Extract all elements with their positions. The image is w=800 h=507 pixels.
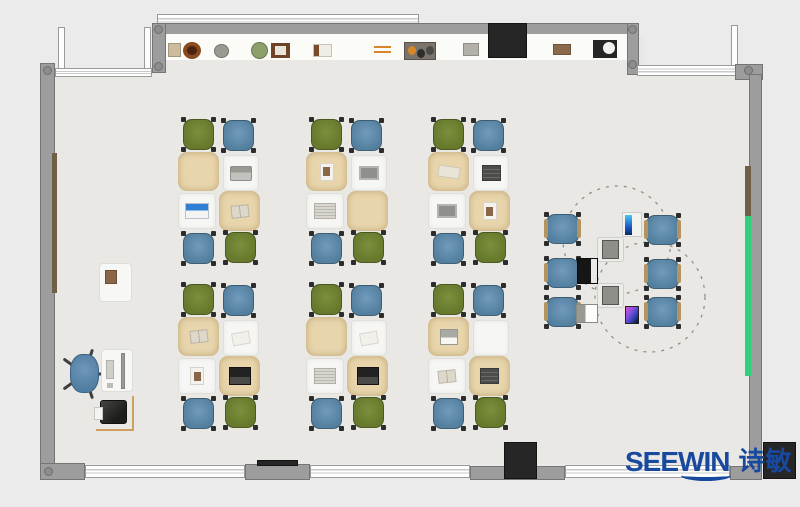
desk-item-laptop-dark bbox=[229, 367, 251, 385]
armrest bbox=[544, 219, 548, 238]
chair-foot bbox=[576, 324, 581, 329]
chair-seat bbox=[473, 120, 504, 151]
desk-item-newspaper bbox=[314, 203, 336, 219]
chair-foot bbox=[181, 231, 186, 236]
chair-foot bbox=[221, 118, 226, 123]
chair-foot bbox=[349, 118, 354, 123]
tray-item bbox=[426, 46, 434, 55]
chair-seat bbox=[546, 297, 579, 327]
shelf-tray bbox=[404, 42, 436, 60]
student-chair-blue bbox=[351, 285, 382, 316]
teacher-side-desk bbox=[99, 263, 132, 302]
discussion-chair-blue bbox=[646, 215, 679, 245]
student-chair-blue bbox=[473, 120, 504, 151]
student-desk-tan bbox=[306, 152, 347, 191]
student-desk-white bbox=[473, 155, 509, 191]
chair-foot bbox=[211, 312, 216, 317]
chair-foot bbox=[181, 312, 186, 317]
shelf-device bbox=[463, 43, 479, 56]
chair-foot bbox=[211, 282, 216, 287]
chair-seat bbox=[473, 285, 504, 316]
chair-foot bbox=[576, 285, 581, 290]
chair-foot bbox=[576, 241, 581, 246]
chair-foot bbox=[471, 283, 476, 288]
student-chair-green bbox=[183, 119, 214, 150]
chair-foot bbox=[461, 396, 466, 401]
wall-joint-dot bbox=[744, 66, 753, 75]
chair-seat bbox=[183, 284, 214, 315]
chair-foot bbox=[349, 313, 354, 318]
chair-foot bbox=[339, 117, 344, 122]
desk-item-book-open bbox=[189, 329, 208, 344]
desk-item-photo bbox=[320, 163, 334, 181]
chair-foot bbox=[473, 230, 478, 235]
student-chair-green bbox=[311, 119, 342, 150]
student-chair-blue bbox=[311, 398, 342, 429]
logo-chinese-text: 诗敏 bbox=[738, 448, 792, 474]
desk-item-laptop-dark bbox=[357, 367, 379, 385]
student-chair-blue bbox=[223, 120, 254, 151]
chair-foot bbox=[461, 282, 466, 287]
chair-foot bbox=[501, 148, 506, 153]
chair-foot bbox=[351, 260, 356, 265]
equipment-laptop-white bbox=[576, 304, 598, 323]
student-desk-white bbox=[473, 320, 509, 356]
chair-foot bbox=[379, 283, 384, 288]
student-chair-green bbox=[433, 284, 464, 315]
chair-foot bbox=[339, 261, 344, 266]
chair-foot bbox=[473, 260, 478, 265]
bottom-door-block bbox=[504, 442, 537, 479]
chair-foot bbox=[501, 283, 506, 288]
chair-foot bbox=[544, 241, 549, 246]
student-desk-tan bbox=[219, 356, 260, 396]
bottom-dark-strip bbox=[257, 460, 298, 466]
logo-swoosh-icon bbox=[681, 470, 731, 481]
student-desk-tan bbox=[306, 317, 347, 356]
desk-item-newspaper bbox=[314, 368, 336, 384]
chair-foot bbox=[644, 257, 649, 262]
chair-foot bbox=[473, 425, 478, 430]
chair-foot bbox=[431, 231, 436, 236]
bottom-window-a bbox=[85, 465, 245, 478]
desk-item-paper bbox=[359, 330, 379, 346]
stick bbox=[374, 51, 391, 53]
bottom-window-b bbox=[310, 465, 470, 478]
chair-foot bbox=[576, 212, 581, 217]
desk-item-photo bbox=[483, 202, 497, 220]
chair-foot bbox=[544, 212, 549, 217]
logo-wordmark: SEEWIN bbox=[625, 448, 729, 476]
chair-foot bbox=[339, 147, 344, 152]
student-desk-white bbox=[223, 155, 259, 191]
student-chair-green bbox=[433, 119, 464, 150]
topright-frame bbox=[731, 25, 738, 67]
chair-foot bbox=[503, 230, 508, 235]
chair-foot bbox=[644, 295, 649, 300]
chair-foot bbox=[501, 313, 506, 318]
student-desk-white bbox=[351, 320, 387, 356]
chair-foot bbox=[431, 312, 436, 317]
chair-seat bbox=[311, 233, 342, 264]
chair-foot bbox=[181, 396, 186, 401]
discussion-chair-blue bbox=[646, 297, 679, 327]
chair-seat bbox=[433, 119, 464, 150]
chair-seat bbox=[351, 120, 382, 151]
armrest bbox=[677, 220, 681, 239]
chair-foot bbox=[181, 147, 186, 152]
student-chair-green bbox=[311, 284, 342, 315]
student-desk-white bbox=[428, 193, 466, 229]
student-chair-blue bbox=[223, 285, 254, 316]
monitor bbox=[121, 353, 125, 389]
armrest bbox=[644, 220, 648, 239]
desk-item-notebook-dark bbox=[480, 368, 499, 384]
chair-seat bbox=[223, 120, 254, 151]
wall-joint-dot bbox=[628, 25, 637, 34]
shelf-books bbox=[313, 44, 332, 57]
chair-foot bbox=[211, 147, 216, 152]
chair-foot bbox=[221, 313, 226, 318]
chair-foot bbox=[461, 312, 466, 317]
student-chair-green bbox=[475, 232, 506, 263]
chair-foot bbox=[253, 395, 258, 400]
chair-seat bbox=[311, 398, 342, 429]
chair-seat bbox=[646, 259, 679, 289]
desk-item-book-open bbox=[437, 369, 456, 384]
chair-foot bbox=[309, 426, 314, 431]
wall-joint-dot bbox=[628, 60, 637, 69]
chair-foot bbox=[676, 242, 681, 247]
student-desk-white bbox=[306, 358, 344, 394]
equipment-machine bbox=[597, 283, 624, 308]
chair-foot bbox=[351, 425, 356, 430]
desk-item-laptop-gray bbox=[230, 166, 252, 181]
chair-foot bbox=[379, 313, 384, 318]
chair-foot bbox=[253, 425, 258, 430]
chair-foot bbox=[461, 231, 466, 236]
student-chair-blue bbox=[311, 233, 342, 264]
chair-foot bbox=[211, 426, 216, 431]
wall-joint-dot bbox=[154, 62, 163, 71]
student-chair-blue bbox=[433, 233, 464, 264]
chair-seat bbox=[646, 297, 679, 327]
shelf-plate bbox=[214, 44, 229, 58]
seewin-logo: SEEWIN 诗敏 bbox=[625, 448, 792, 476]
armrest bbox=[544, 302, 548, 321]
student-chair-green bbox=[183, 284, 214, 315]
student-chair-green bbox=[353, 397, 384, 428]
chair-foot bbox=[461, 147, 466, 152]
student-chair-green bbox=[225, 397, 256, 428]
discussion-chair-blue bbox=[546, 297, 579, 327]
student-chair-blue bbox=[183, 398, 214, 429]
chair-foot bbox=[471, 148, 476, 153]
desk-item-keyboard-paper bbox=[440, 329, 458, 345]
chair-foot bbox=[461, 261, 466, 266]
chair-foot bbox=[339, 312, 344, 317]
chair-foot bbox=[223, 425, 228, 430]
chair-seat bbox=[183, 119, 214, 150]
chair-foot bbox=[503, 395, 508, 400]
chair-foot bbox=[339, 282, 344, 287]
chair-foot bbox=[181, 426, 186, 431]
shelf-sticks bbox=[374, 46, 391, 54]
chair-foot bbox=[431, 261, 436, 266]
chair-foot bbox=[181, 117, 186, 122]
chair-foot bbox=[381, 425, 386, 430]
chair-seat bbox=[223, 285, 254, 316]
chair-seat bbox=[225, 232, 256, 263]
chair-foot bbox=[544, 295, 549, 300]
chair-foot bbox=[339, 426, 344, 431]
student-desk-white bbox=[178, 193, 216, 229]
topleft-window-band bbox=[55, 68, 152, 77]
floorplan-scene: SEEWIN 诗敏 bbox=[0, 0, 800, 507]
student-desk-tan bbox=[347, 356, 388, 396]
student-chair-blue bbox=[183, 233, 214, 264]
desk-item-paper-pen bbox=[437, 164, 460, 179]
printer bbox=[100, 400, 127, 424]
chair-foot bbox=[181, 261, 186, 266]
entry-frame-right bbox=[144, 27, 151, 71]
chair-foot bbox=[211, 231, 216, 236]
teacher-desk bbox=[101, 349, 133, 392]
chair-seat bbox=[475, 397, 506, 428]
chair-foot bbox=[431, 147, 436, 152]
chair-seat bbox=[546, 214, 579, 244]
desk-item-photo bbox=[190, 367, 204, 385]
chair-foot bbox=[644, 286, 649, 291]
chair-foot bbox=[503, 260, 508, 265]
equipment-monitor-panel bbox=[622, 212, 642, 237]
chair-seat bbox=[311, 284, 342, 315]
chair-foot bbox=[676, 295, 681, 300]
chair-foot bbox=[251, 313, 256, 318]
chair-foot bbox=[503, 425, 508, 430]
student-desk-tan bbox=[178, 317, 219, 356]
chair-foot bbox=[381, 230, 386, 235]
keyboard bbox=[106, 360, 114, 379]
desk-item-book-open bbox=[230, 204, 249, 219]
chair-seat bbox=[433, 284, 464, 315]
student-desk-tan bbox=[428, 317, 469, 356]
chair-foot bbox=[351, 230, 356, 235]
chair-foot bbox=[676, 213, 681, 218]
shelf-clock bbox=[593, 40, 617, 58]
student-chair-blue bbox=[433, 398, 464, 429]
equipment-machine bbox=[597, 237, 624, 262]
student-chair-blue bbox=[351, 120, 382, 151]
equipment-laptop-black bbox=[577, 258, 598, 284]
shelf-box2 bbox=[553, 44, 571, 55]
armrest bbox=[677, 264, 681, 283]
right-accent-brown bbox=[745, 166, 751, 216]
chair-seat bbox=[353, 397, 384, 428]
bottom-pier-a bbox=[245, 464, 310, 480]
desk-item-notebook-dark bbox=[482, 165, 501, 181]
student-desk-tan bbox=[428, 152, 469, 191]
teacher-office-chair bbox=[67, 351, 102, 396]
shelf-picture-frame bbox=[271, 43, 290, 58]
right-accent-teal bbox=[745, 216, 751, 376]
chair-foot bbox=[339, 231, 344, 236]
student-chair-green bbox=[353, 232, 384, 263]
tray-item bbox=[408, 46, 416, 55]
chair-foot bbox=[253, 230, 258, 235]
chair-foot bbox=[221, 283, 226, 288]
chair-foot bbox=[471, 313, 476, 318]
chair-seat bbox=[183, 398, 214, 429]
chair-foot bbox=[501, 118, 506, 123]
student-desk-white bbox=[428, 358, 466, 394]
wall-joint-dot bbox=[44, 467, 53, 476]
printer-paper bbox=[94, 407, 103, 420]
chair-foot bbox=[251, 148, 256, 153]
chair-foot bbox=[644, 324, 649, 329]
chair-foot bbox=[309, 282, 314, 287]
chair-foot bbox=[223, 230, 228, 235]
tray-item bbox=[417, 49, 425, 58]
chair-foot bbox=[471, 118, 476, 123]
chair-seat bbox=[225, 397, 256, 428]
office-chair-seat bbox=[70, 354, 99, 393]
chair-foot bbox=[544, 285, 549, 290]
chair-foot bbox=[211, 261, 216, 266]
chair-seat bbox=[311, 119, 342, 150]
student-desk-tan bbox=[469, 191, 510, 231]
student-desk-tan bbox=[178, 152, 219, 191]
desk-item-paper bbox=[231, 330, 251, 346]
student-desk-white bbox=[223, 320, 259, 356]
wall-joint-dot bbox=[154, 25, 163, 34]
wall-joint-dot bbox=[43, 66, 52, 75]
chair-foot bbox=[211, 117, 216, 122]
discussion-chair-blue bbox=[546, 214, 579, 244]
armrest bbox=[644, 302, 648, 321]
student-chair-green bbox=[475, 397, 506, 428]
chair-foot bbox=[473, 395, 478, 400]
stick bbox=[374, 46, 391, 48]
mouse bbox=[107, 383, 113, 388]
chair-foot bbox=[221, 148, 226, 153]
chair-foot bbox=[309, 312, 314, 317]
chair-foot bbox=[431, 396, 436, 401]
student-desk-tan bbox=[347, 191, 388, 231]
chair-foot bbox=[309, 147, 314, 152]
chair-foot bbox=[351, 395, 356, 400]
chair-foot bbox=[544, 256, 549, 261]
chair-seat bbox=[433, 233, 464, 264]
student-desk-white bbox=[351, 155, 387, 191]
chair-foot bbox=[223, 395, 228, 400]
topright-window-band bbox=[637, 65, 737, 76]
desk-item-tablet bbox=[359, 166, 379, 180]
student-desk-tan bbox=[469, 356, 510, 396]
armrest bbox=[544, 263, 548, 282]
chair-seat bbox=[351, 285, 382, 316]
chair-foot bbox=[431, 282, 436, 287]
chair-foot bbox=[379, 148, 384, 153]
chair-seat bbox=[646, 215, 679, 245]
student-desk-white bbox=[178, 358, 216, 394]
shelf-bowl bbox=[183, 42, 201, 59]
discussion-chair-blue bbox=[646, 259, 679, 289]
chair-foot bbox=[349, 283, 354, 288]
chair-foot bbox=[339, 396, 344, 401]
chair-foot bbox=[644, 213, 649, 218]
discussion-chair-blue bbox=[546, 258, 579, 288]
chair-foot bbox=[223, 260, 228, 265]
frame-inner bbox=[275, 46, 286, 55]
chair-foot bbox=[309, 231, 314, 236]
armrest bbox=[577, 219, 581, 238]
chair-foot bbox=[676, 324, 681, 329]
chair-seat bbox=[183, 233, 214, 264]
chair-foot bbox=[309, 396, 314, 401]
chair-foot bbox=[379, 118, 384, 123]
chair-foot bbox=[309, 261, 314, 266]
chair-foot bbox=[431, 117, 436, 122]
chair-foot bbox=[251, 118, 256, 123]
equipment-phone bbox=[625, 306, 639, 324]
chair-seat bbox=[546, 258, 579, 288]
armrest bbox=[677, 302, 681, 321]
chair-foot bbox=[381, 260, 386, 265]
student-desk-white bbox=[306, 193, 344, 229]
student-chair-blue bbox=[473, 285, 504, 316]
chair-foot bbox=[461, 426, 466, 431]
student-chair-green bbox=[225, 232, 256, 263]
book-spine bbox=[314, 45, 319, 56]
chair-foot bbox=[576, 295, 581, 300]
chair-foot bbox=[644, 242, 649, 247]
chair-foot bbox=[544, 324, 549, 329]
chair-foot bbox=[461, 117, 466, 122]
chair-foot bbox=[253, 260, 258, 265]
side-desk-item bbox=[105, 270, 117, 284]
chair-seat bbox=[353, 232, 384, 263]
left-accent-board bbox=[52, 153, 57, 293]
chair-foot bbox=[251, 283, 256, 288]
chair-foot bbox=[309, 117, 314, 122]
chair-seat bbox=[475, 232, 506, 263]
wall-tv bbox=[488, 23, 527, 58]
chair-foot bbox=[181, 282, 186, 287]
chair-foot bbox=[676, 286, 681, 291]
chair-seat bbox=[433, 398, 464, 429]
chair-foot bbox=[431, 426, 436, 431]
chair-foot bbox=[349, 148, 354, 153]
desk-item-tablet bbox=[437, 204, 457, 218]
shelf-box bbox=[168, 43, 181, 57]
clock-face bbox=[603, 42, 615, 54]
student-desk-tan bbox=[219, 191, 260, 231]
chair-foot bbox=[676, 257, 681, 262]
chair-foot bbox=[381, 395, 386, 400]
desk-item-screen-laptop bbox=[185, 203, 209, 219]
chair-foot bbox=[211, 396, 216, 401]
armrest bbox=[644, 264, 648, 283]
shelf-plant bbox=[251, 42, 268, 59]
entry-frame-left bbox=[58, 27, 65, 71]
